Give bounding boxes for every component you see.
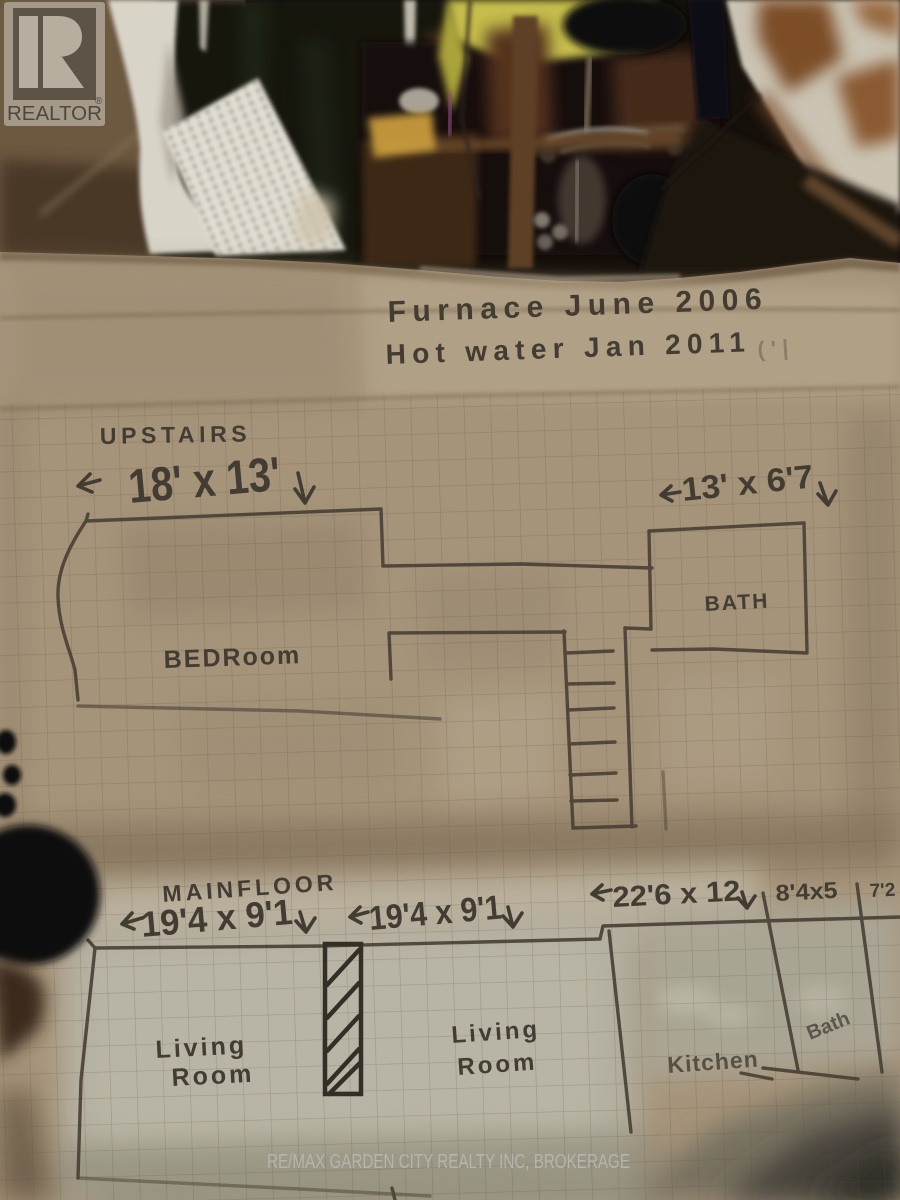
svg-text:8'4x5: 8'4x5 xyxy=(775,877,838,906)
svg-text:®: ® xyxy=(95,96,103,107)
svg-text:REALTOR: REALTOR xyxy=(7,102,102,125)
svg-text:Living: Living xyxy=(155,1031,248,1064)
svg-text:Room: Room xyxy=(457,1048,539,1081)
svg-text:22'6 x 12: 22'6 x 12 xyxy=(612,875,741,914)
svg-text:RE/MAX GARDEN CITY REALTY INC,: RE/MAX GARDEN CITY REALTY INC, BROKERAGE xyxy=(267,1151,630,1173)
svg-text:7'2: 7'2 xyxy=(869,880,896,902)
svg-text:BATH: BATH xyxy=(704,590,770,616)
svg-text:BEDRoom: BEDRoom xyxy=(163,641,302,674)
svg-text:Room: Room xyxy=(171,1060,255,1092)
svg-text:UPSTAIRS: UPSTAIRS xyxy=(100,420,252,449)
svg-text:( ' |: ( ' | xyxy=(757,335,790,362)
